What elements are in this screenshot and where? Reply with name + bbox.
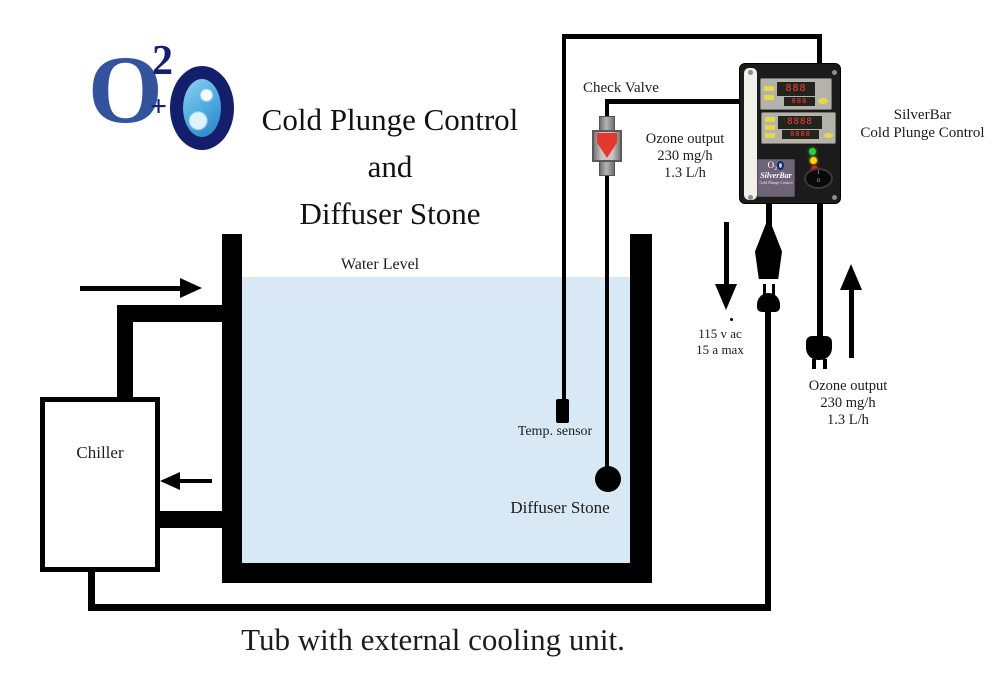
display-readout: 8888 — [782, 130, 819, 139]
control-unit: 888 888 8888 8888 I O O₂ SilverBar Cold … — [739, 63, 841, 204]
unit-caption-line1: SilverBar — [845, 106, 1000, 124]
ozone-lower-line1: Ozone output — [788, 378, 908, 395]
chiller-cord-horizontal — [88, 604, 771, 611]
temp-controller-display: 888 888 — [760, 78, 832, 110]
green-led — [809, 148, 816, 155]
ozone-tube-lower — [605, 176, 609, 470]
power-line2: 15 a max — [686, 342, 754, 358]
ozone-output-label-upper: Ozone output 230 mg/h 1.3 L/h — [628, 131, 742, 182]
cordA-from-unit — [766, 203, 772, 226]
pipe-return-horizontal — [155, 511, 223, 528]
controller-button — [765, 133, 775, 138]
check-valve-label: Check Valve — [560, 80, 682, 97]
title-line-1: Cold Plunge Control — [240, 96, 540, 143]
down-arrow-shaft — [724, 222, 729, 286]
unit-caption: SilverBar Cold Plunge Control — [845, 106, 1000, 142]
ozone-lower-line2: 230 mg/h — [788, 395, 908, 412]
title-line-2: and — [240, 143, 540, 190]
screw-icon — [832, 195, 837, 200]
silverbar-brand-label: O₂ SilverBar Cold Plunge Control — [757, 159, 795, 197]
flow-arrow-left-shaft — [178, 479, 212, 483]
brand-logo-text: O₂ — [768, 160, 778, 170]
controller-oval-button — [824, 133, 833, 138]
diagram-canvas: O 2 + Cold Plunge Control and Diffuser S… — [0, 0, 1000, 678]
wall-plug — [806, 336, 832, 360]
control-unit-white-strip — [744, 68, 757, 200]
ozone-upper-line1: Ozone output — [628, 131, 742, 148]
check-valve-bottom-nipple — [599, 161, 615, 176]
brand-mini-ellipse-icon — [777, 161, 784, 170]
ozone-upper-line2: 230 mg/h — [628, 148, 742, 165]
title-line-3: Diffuser Stone — [240, 190, 540, 237]
temp-sensor-label: Temp. sensor — [490, 424, 620, 440]
tub-wall-right — [630, 234, 652, 583]
ozone-tube-horizontal — [607, 99, 746, 104]
tub-wall-bottom — [222, 563, 652, 583]
ozone-upper-line3: 1.3 L/h — [628, 165, 742, 182]
display-readout: 888 — [777, 82, 815, 96]
power-switch: I O — [804, 168, 833, 189]
yellow-led — [810, 157, 817, 164]
female-connector — [755, 224, 782, 279]
logo-plus-sign: + — [150, 92, 167, 122]
power-line1: 115 v ac — [686, 326, 754, 342]
ozone-controller-display: 8888 8888 — [761, 112, 836, 144]
page-title: Cold Plunge Control and Diffuser Stone — [240, 96, 540, 237]
brand-subtitle: Cold Plunge Control — [758, 180, 794, 185]
cordB-from-unit — [817, 203, 823, 338]
chiller-cord-up — [88, 570, 95, 610]
ozone-lower-line3: 1.3 L/h — [788, 412, 908, 429]
plug-prong — [812, 359, 816, 369]
stray-dot — [730, 318, 733, 321]
flow-arrow-left-icon — [160, 472, 180, 490]
sensor-wire-top-horizontal — [562, 34, 822, 39]
sensor-wire-right-drop — [817, 34, 822, 66]
screw-icon — [832, 70, 837, 75]
flow-arrow-right-icon — [180, 278, 202, 298]
logo-bubble-ellipse-icon — [170, 66, 234, 150]
unit-caption-line2: Cold Plunge Control — [845, 124, 1000, 142]
water-level-label: Water Level — [310, 256, 450, 274]
diffuser-stone-label: Diffuser Stone — [480, 498, 640, 518]
temp-sensor-tip — [556, 399, 569, 423]
tub-wall-left — [222, 234, 242, 583]
diffuser-stone — [595, 466, 621, 492]
controller-oval-button — [818, 98, 828, 104]
display-readout: 8888 — [778, 116, 822, 129]
controller-button — [764, 86, 774, 91]
logo-exponent-2: 2 — [152, 40, 173, 82]
ozone-output-label-lower: Ozone output 230 mg/h 1.3 L/h — [788, 378, 908, 429]
plug-prong — [823, 359, 827, 369]
power-rating-label: 115 v ac 15 a max — [686, 326, 754, 358]
controller-button — [765, 117, 775, 122]
brand-name: SilverBar — [758, 171, 794, 180]
switch-off-mark: O — [806, 178, 831, 186]
chiller-cord-vertical — [765, 310, 771, 611]
controller-button — [764, 95, 774, 100]
switch-on-mark: I — [806, 170, 831, 178]
chiller-box — [40, 397, 160, 572]
controller-button — [765, 125, 775, 130]
pipe-inlet-vertical — [117, 305, 133, 398]
screw-icon — [748, 195, 753, 200]
display-readout: 888 — [784, 97, 815, 106]
diagram-caption: Tub with external cooling unit. — [183, 622, 683, 658]
flow-arrow-right-shaft — [80, 286, 182, 291]
chiller-label: Chiller — [40, 443, 160, 463]
up-arrow-icon — [840, 264, 862, 290]
screw-icon — [748, 70, 753, 75]
down-arrow-icon — [715, 284, 737, 310]
tub-water — [242, 277, 630, 563]
check-valve-top-nipple — [599, 116, 615, 131]
up-arrow-shaft — [849, 288, 854, 358]
